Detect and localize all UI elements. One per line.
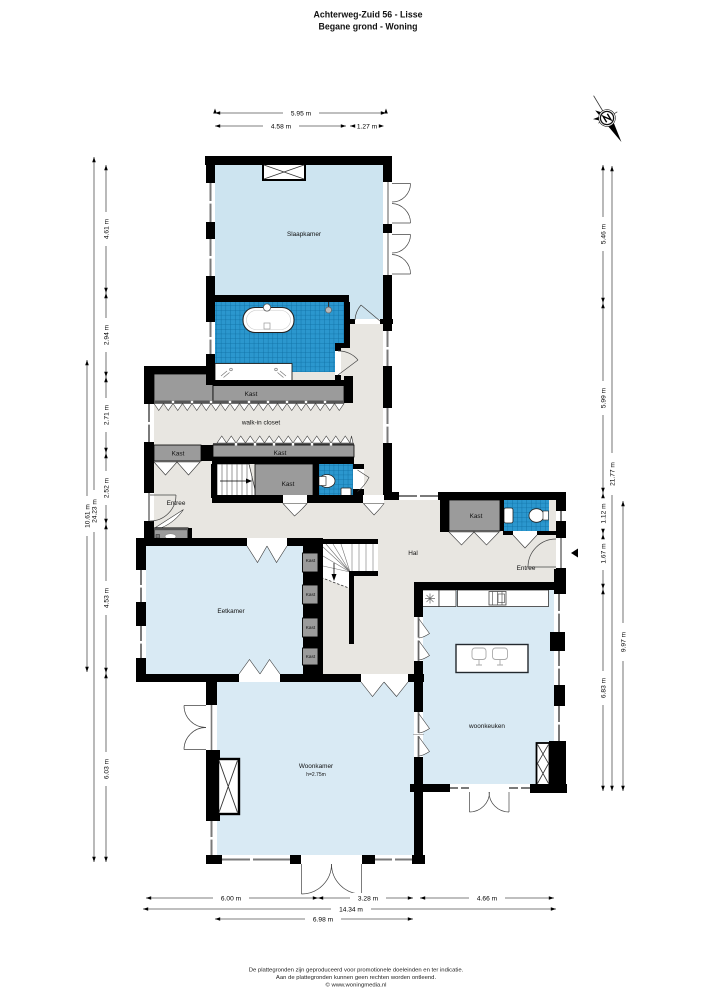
svg-text:Kast: Kast xyxy=(274,450,287,457)
svg-text:Kast: Kast xyxy=(282,481,295,488)
svg-text:Kast: Kast xyxy=(470,513,483,520)
svg-text:Eetkamer: Eetkamer xyxy=(217,608,245,615)
svg-text:© www.woningmedia.nl: © www.woningmedia.nl xyxy=(326,982,387,989)
svg-text:1.67 m: 1.67 m xyxy=(601,543,608,564)
svg-text:h=2.75m: h=2.75m xyxy=(306,772,326,778)
svg-text:Achterweg-Zuid 56 - Lisse: Achterweg-Zuid 56 - Lisse xyxy=(313,10,422,20)
svg-text:Aan de plattegronden kunnen ge: Aan de plattegronden kunnen geen rechten… xyxy=(276,975,437,981)
svg-text:Kast: Kast xyxy=(245,391,258,398)
svg-text:6.98 m: 6.98 m xyxy=(313,917,334,924)
svg-text:4.58 m: 4.58 m xyxy=(271,124,292,131)
svg-text:6.83 m: 6.83 m xyxy=(601,677,608,698)
svg-text:14.34 m: 14.34 m xyxy=(339,907,363,914)
svg-text:4.53 m: 4.53 m xyxy=(104,587,111,608)
svg-text:5.95 m: 5.95 m xyxy=(291,111,312,118)
svg-text:Woonkamer: Woonkamer xyxy=(299,763,334,770)
svg-text:Kast: Kast xyxy=(306,592,316,597)
svg-text:1.27 m: 1.27 m xyxy=(357,124,378,131)
svg-text:Entree: Entree xyxy=(517,565,536,572)
svg-text:woonkeuken: woonkeuken xyxy=(468,723,505,730)
svg-text:Kast: Kast xyxy=(306,558,316,563)
svg-text:21.77 m: 21.77 m xyxy=(610,462,617,486)
svg-text:Entree: Entree xyxy=(167,500,186,507)
svg-text:3.28 m: 3.28 m xyxy=(358,896,379,903)
svg-text:Kast: Kast xyxy=(306,625,316,630)
svg-text:4.66 m: 4.66 m xyxy=(477,896,498,903)
svg-text:5.99 m: 5.99 m xyxy=(601,387,608,408)
svg-text:5.46 m: 5.46 m xyxy=(601,223,608,244)
svg-text:9.97 m: 9.97 m xyxy=(621,631,628,652)
svg-text:2.52 m: 2.52 m xyxy=(104,477,111,498)
svg-text:2.94 m: 2.94 m xyxy=(104,324,111,345)
svg-text:Kast: Kast xyxy=(306,654,316,659)
svg-text:De plattegronden zijn geproduc: De plattegronden zijn geproduceerd voor … xyxy=(249,968,464,974)
svg-text:2.71 m: 2.71 m xyxy=(104,404,111,425)
svg-text:Slaapkamer: Slaapkamer xyxy=(287,231,322,238)
svg-text:24.23 m: 24.23 m xyxy=(92,499,99,523)
svg-text:Kast: Kast xyxy=(172,451,185,458)
svg-text:Begane grond - Woning: Begane grond - Woning xyxy=(318,22,417,32)
svg-text:10.61 m: 10.61 m xyxy=(85,504,92,528)
svg-text:1.12 m: 1.12 m xyxy=(601,503,608,524)
svg-text:4.61 m: 4.61 m xyxy=(104,218,111,239)
svg-text:6.03 m: 6.03 m xyxy=(104,758,111,779)
svg-text:6.00 m: 6.00 m xyxy=(221,896,242,903)
svg-text:Hal: Hal xyxy=(408,550,418,557)
svg-text:walk-in closet: walk-in closet xyxy=(241,420,281,427)
